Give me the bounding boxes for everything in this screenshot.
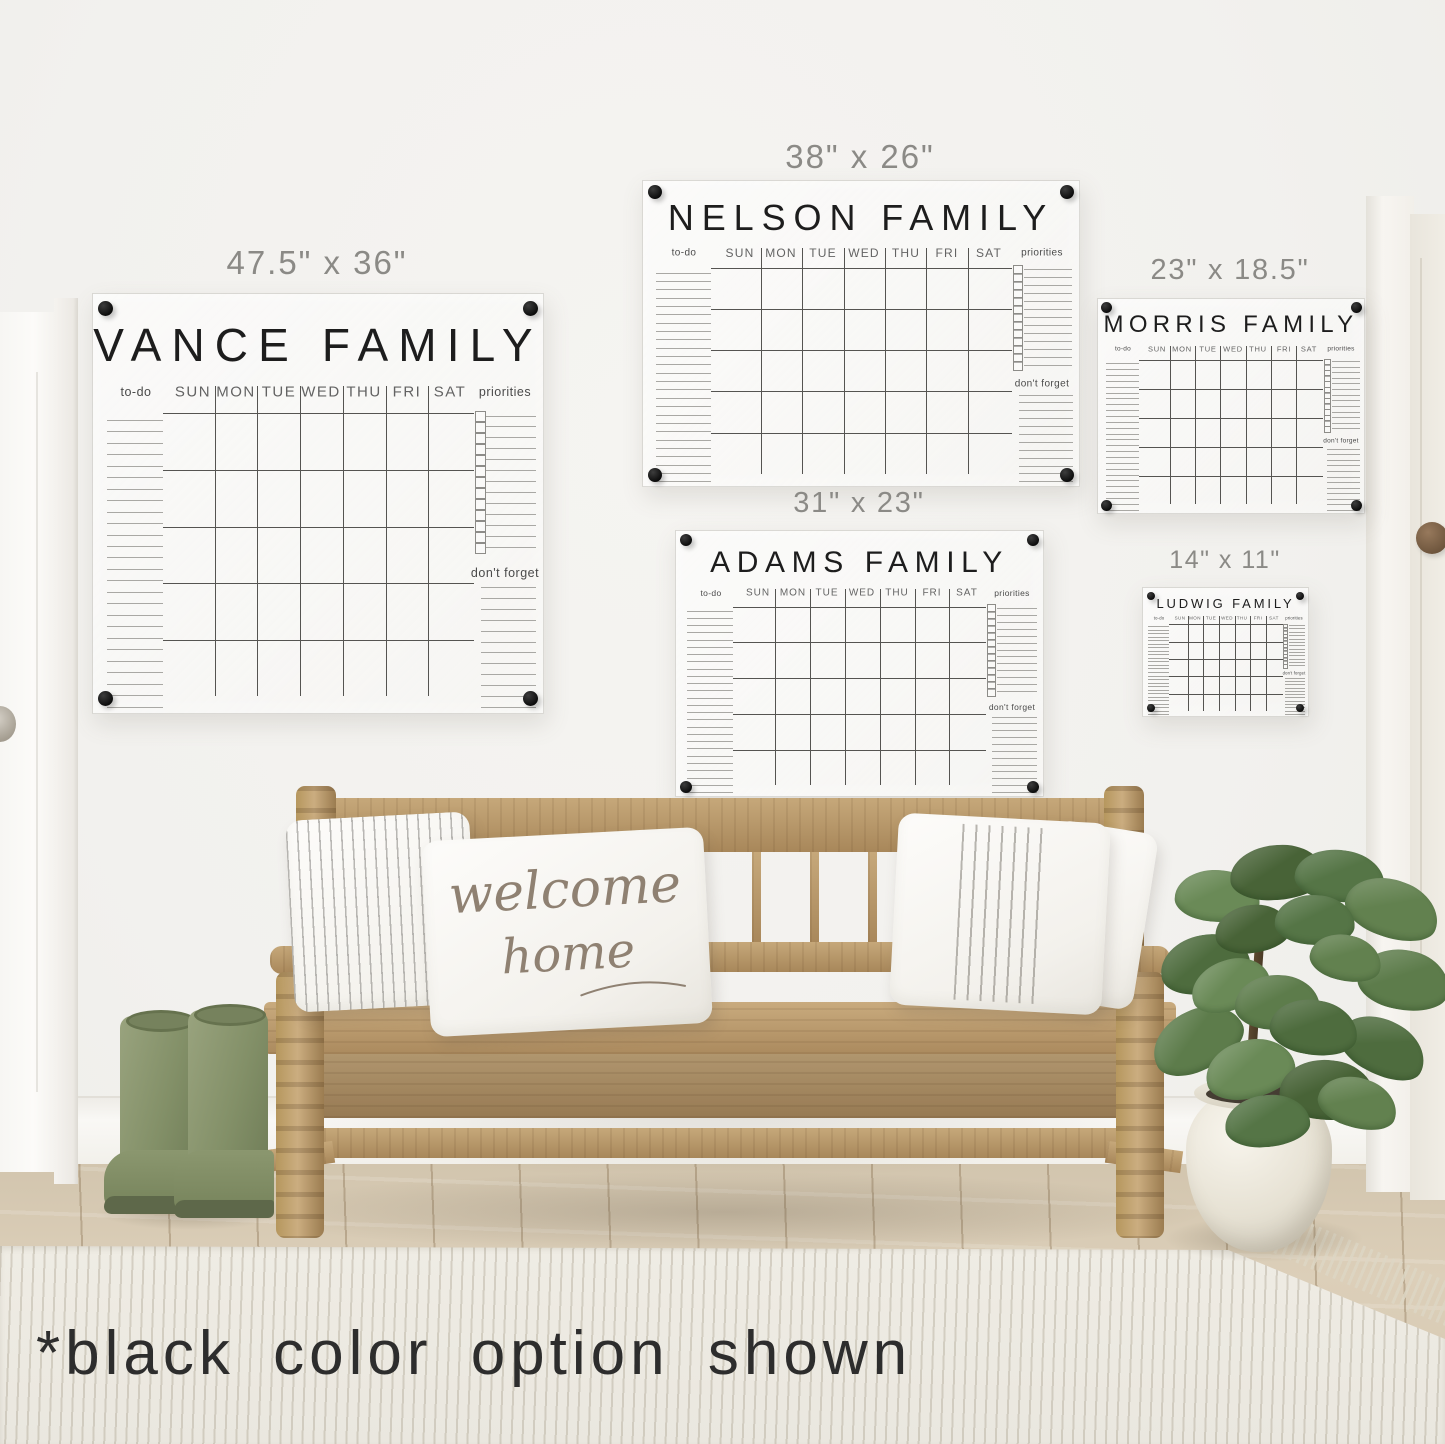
priority-line [1332, 383, 1360, 384]
mounting-screw [523, 301, 538, 316]
priority-line [1289, 652, 1305, 653]
priority-line [1024, 349, 1072, 350]
grid-row-line [163, 640, 474, 641]
todo-line [1106, 439, 1139, 440]
grid-vertical-line [968, 248, 969, 474]
dont-forget-label: don't forget [1015, 379, 1070, 390]
todo-line [107, 638, 163, 639]
day-header: TUE [1199, 345, 1216, 354]
note-line [1285, 697, 1305, 698]
note-line [481, 587, 536, 588]
grid-vertical-line [949, 589, 950, 785]
day-header: THU [892, 246, 920, 260]
left-door [0, 312, 56, 1172]
grid-vertical-line [1271, 346, 1272, 504]
todo-line [107, 661, 163, 662]
day-header: THU [1237, 616, 1248, 621]
grid-vertical-line [257, 386, 258, 696]
todo-line [656, 281, 711, 282]
dont-forget-label: don't forget [1283, 671, 1306, 676]
priority-line [997, 677, 1037, 678]
day-header-underline [711, 268, 1012, 269]
grid-vertical-line [761, 248, 762, 474]
todo-line [1148, 644, 1169, 645]
todo-line [1148, 693, 1169, 694]
mounting-screw [98, 691, 113, 706]
grid-vertical-line [1195, 346, 1196, 504]
note-line [1327, 493, 1360, 494]
priority-line [1289, 649, 1305, 650]
priority-checkbox [1324, 426, 1331, 433]
todo-line [1106, 445, 1139, 446]
day-header: TUE [809, 246, 837, 260]
left-door-frame [54, 298, 78, 1184]
priority-line [1289, 645, 1305, 646]
note-line [1019, 466, 1073, 467]
priority-line [997, 670, 1037, 671]
priority-line [1024, 317, 1072, 318]
priority-line [997, 656, 1037, 657]
note-line [1019, 402, 1073, 403]
todo-line [656, 381, 711, 382]
note-line [1019, 418, 1073, 419]
priority-checkbox [987, 688, 996, 697]
todo-line [656, 331, 711, 332]
day-header-underline [733, 607, 986, 608]
left-door-panel-line [36, 372, 38, 1092]
todo-line [1148, 672, 1169, 673]
priority-line [1024, 285, 1072, 286]
priority-line [997, 636, 1037, 637]
todo-line [687, 683, 733, 684]
grid-vertical-line [1220, 346, 1221, 504]
grid-row-line [1139, 447, 1323, 448]
todo-line [687, 611, 733, 612]
priority-checkbox [1013, 361, 1023, 371]
note-line [1019, 426, 1073, 427]
note-line [992, 771, 1037, 772]
todo-line [107, 695, 163, 696]
todo-line [1106, 422, 1139, 423]
day-header: THU [1249, 345, 1267, 354]
note-line [1285, 684, 1305, 685]
note-line [992, 758, 1037, 759]
todo-line [687, 690, 733, 691]
priority-line [1332, 417, 1360, 418]
todo-line [656, 339, 711, 340]
todo-line [687, 763, 733, 764]
grid-vertical-line [915, 589, 916, 785]
priority-line [486, 426, 536, 427]
todo-line [1106, 369, 1139, 370]
todo-line [107, 477, 163, 478]
dont-forget-label: don't forget [989, 702, 1035, 712]
day-header: TUE [1206, 616, 1216, 621]
todo-line [687, 632, 733, 633]
priority-line [1332, 389, 1360, 390]
note-line [1327, 482, 1360, 483]
priority-line [1332, 378, 1360, 379]
note-line [1285, 688, 1305, 689]
priority-checkbox [475, 488, 486, 499]
right-boot-opening [194, 1004, 266, 1026]
priority-checkbox [475, 510, 486, 521]
note-line [1019, 410, 1073, 411]
todo-line [687, 778, 733, 779]
todo-line [107, 546, 163, 547]
priority-checkbox [475, 455, 486, 466]
todo-label: to-do [700, 588, 721, 598]
note-line [1327, 465, 1360, 466]
priority-line [1024, 325, 1072, 326]
todo-line [107, 535, 163, 536]
todo-line [1148, 651, 1169, 652]
todo-line [1106, 492, 1139, 493]
priority-line [997, 622, 1037, 623]
grid-vertical-line [1246, 346, 1247, 504]
priority-line [1332, 406, 1360, 407]
todo-line [687, 734, 733, 735]
mounting-screw [1027, 534, 1039, 546]
day-header: SAT [434, 384, 467, 401]
day-header: FRI [1254, 616, 1263, 621]
todo-line [1148, 700, 1169, 701]
todo-line [687, 647, 733, 648]
note-line [1019, 434, 1073, 435]
todo-line [687, 669, 733, 670]
todo-label: to-do [672, 248, 697, 259]
grid-vertical-line [386, 386, 387, 696]
todo-line [656, 364, 711, 365]
priority-line [1289, 642, 1305, 643]
todo-line [107, 523, 163, 524]
note-line [1285, 678, 1305, 679]
todo-line [1106, 451, 1139, 452]
bench-front-stretcher [324, 1128, 1116, 1158]
bench-spindle [868, 852, 877, 944]
todo-line [1148, 630, 1169, 631]
mounting-screw [523, 691, 538, 706]
bench-spindle [752, 852, 761, 944]
grid-vertical-line [802, 248, 803, 474]
size-label-vance: 47.5" x 36" [227, 244, 408, 282]
todo-line [1106, 434, 1139, 435]
todo-line [1106, 398, 1139, 399]
mounting-screw [1296, 704, 1304, 712]
mounting-screw [1351, 302, 1362, 313]
striped-pillow-right [889, 813, 1111, 1016]
priority-line [1289, 662, 1305, 663]
day-header: FRI [922, 588, 941, 599]
todo-line [656, 415, 711, 416]
todo-line [1106, 404, 1139, 405]
grid-row-line [733, 642, 986, 643]
grid-vertical-line [844, 248, 845, 474]
note-line [992, 737, 1037, 738]
todo-line [656, 348, 711, 349]
day-header: WED [849, 588, 875, 599]
priority-line [1289, 665, 1305, 666]
priority-line [997, 615, 1037, 616]
grid-vertical-line [215, 386, 216, 696]
todo-line [656, 406, 711, 407]
todo-line [107, 649, 163, 650]
priority-checkbox [475, 543, 486, 554]
mounting-screw [1147, 592, 1155, 600]
todo-line [1106, 457, 1139, 458]
todo-line [1106, 463, 1139, 464]
day-header: SUN [726, 246, 755, 260]
grid-vertical-line [775, 589, 776, 785]
priority-checkbox [475, 411, 486, 422]
priority-line [997, 608, 1037, 609]
todo-line [687, 676, 733, 677]
priorities-label: priorities [1327, 346, 1354, 353]
day-header: WED [1221, 616, 1233, 621]
todo-line [107, 420, 163, 421]
grid-row-line [1139, 389, 1323, 390]
priority-checkbox [475, 477, 486, 488]
todo-line [107, 512, 163, 513]
todo-line [107, 454, 163, 455]
grid-row-line [1169, 659, 1283, 660]
calendar-board-nelson: NELSON FAMILYto-doprioritiesdon't forget… [642, 180, 1080, 487]
todo-line [1106, 480, 1139, 481]
note-line [481, 598, 536, 599]
calendar-title-ludwig: LUDWIG FAMILY [1143, 596, 1308, 611]
day-header: FRI [393, 384, 422, 401]
priority-line [486, 547, 536, 548]
todo-line [687, 741, 733, 742]
grid-vertical-line [810, 589, 811, 785]
todo-line [107, 626, 163, 627]
todo-line [656, 440, 711, 441]
note-line [992, 751, 1037, 752]
todo-line [656, 323, 711, 324]
todo-line [656, 306, 711, 307]
todo-line [1148, 637, 1169, 638]
grid-row-line [1169, 642, 1283, 643]
note-line [1019, 458, 1073, 459]
note-line [1285, 694, 1305, 695]
todo-line [107, 592, 163, 593]
bench-floor-shadow [250, 1172, 1200, 1252]
todo-line [1106, 416, 1139, 417]
day-header: MON [780, 588, 806, 599]
todo-line [656, 448, 711, 449]
note-line [1285, 714, 1305, 715]
todo-line [687, 661, 733, 662]
day-header: THU [346, 384, 381, 401]
dont-forget-label: don't forget [1323, 438, 1358, 445]
day-header: TUE [262, 384, 297, 401]
todo-line [1148, 679, 1169, 680]
priority-line [1332, 395, 1360, 396]
right-boot-sole [174, 1200, 274, 1218]
todo-line [687, 770, 733, 771]
note-line [1019, 450, 1073, 451]
calendar-title-adams: ADAMS FAMILY [676, 546, 1043, 580]
priorities-label: priorities [994, 588, 1030, 598]
grid-vertical-line [885, 248, 886, 474]
note-line [481, 685, 536, 686]
grid-vertical-line [1235, 616, 1236, 711]
day-header: SUN [1175, 616, 1186, 621]
pillow-stripe-cluster [953, 824, 1047, 1005]
note-line [992, 744, 1037, 745]
note-line [481, 663, 536, 664]
priority-line [1332, 423, 1360, 424]
priority-checkbox [475, 444, 486, 455]
grid-row-line [163, 470, 474, 471]
priorities-label: priorities [1021, 248, 1063, 259]
mounting-screw [1296, 592, 1304, 600]
grid-row-line [163, 527, 474, 528]
todo-line [1106, 381, 1139, 382]
todo-line [1106, 410, 1139, 411]
todo-label: to-do [121, 385, 152, 399]
grid-row-line [1139, 476, 1323, 477]
todo-line [1148, 658, 1169, 659]
bench-front-left-leg [276, 972, 324, 1238]
priority-line [1024, 365, 1072, 366]
todo-line [1148, 690, 1169, 691]
priority-line [997, 691, 1037, 692]
todo-line [1106, 363, 1139, 364]
todo-line [656, 356, 711, 357]
pillow-text-line1: welcome [422, 853, 707, 928]
priority-line [1024, 357, 1072, 358]
grid-row-line [711, 350, 1012, 351]
mounting-screw [1060, 185, 1074, 199]
priority-line [486, 514, 536, 515]
mounting-screw [98, 301, 113, 316]
todo-line [687, 698, 733, 699]
grid-row-line [711, 391, 1012, 392]
mounting-screw [1351, 500, 1362, 511]
note-line [992, 778, 1037, 779]
note-line [992, 717, 1037, 718]
mounting-screw [648, 185, 662, 199]
note-line [481, 609, 536, 610]
note-line [1327, 488, 1360, 489]
note-line [1327, 460, 1360, 461]
todo-line [107, 489, 163, 490]
day-header: SUN [746, 588, 770, 599]
priority-line [1024, 293, 1072, 294]
todo-line [687, 756, 733, 757]
priority-line [486, 536, 536, 537]
note-line [1019, 395, 1073, 396]
todo-line [687, 727, 733, 728]
priority-line [1024, 309, 1072, 310]
priorities-label: priorities [1285, 616, 1303, 621]
todo-line [687, 712, 733, 713]
todo-line [656, 473, 711, 474]
todo-line [687, 618, 733, 619]
todo-line [656, 481, 711, 482]
priority-checkbox [475, 521, 486, 532]
grid-row-line [733, 714, 986, 715]
todo-line [1106, 469, 1139, 470]
note-line [481, 620, 536, 621]
calendar-board-adams: ADAMS FAMILYto-doprioritiesdon't forgetS… [675, 530, 1044, 797]
priority-line [1332, 361, 1360, 362]
day-header: SAT [1301, 345, 1317, 354]
priority-line [1332, 412, 1360, 413]
priority-line [486, 525, 536, 526]
note-line [481, 642, 536, 643]
todo-line [1148, 668, 1169, 669]
priority-line [486, 503, 536, 504]
note-line [1327, 454, 1360, 455]
priority-line [1289, 655, 1305, 656]
note-line [1019, 442, 1073, 443]
priority-line [1024, 277, 1072, 278]
todo-line [687, 705, 733, 706]
priority-line [486, 437, 536, 438]
priority-checkbox [475, 532, 486, 543]
day-header: FRI [1277, 345, 1291, 354]
todo-line [107, 443, 163, 444]
todo-line [656, 398, 711, 399]
todo-line [1148, 714, 1169, 715]
todo-line [687, 719, 733, 720]
priority-line [1332, 372, 1360, 373]
todo-line [1106, 375, 1139, 376]
todo-line [107, 466, 163, 467]
grid-vertical-line [1296, 346, 1297, 504]
size-label-morris: 23" x 18.5" [1150, 254, 1309, 287]
todo-line [1148, 665, 1169, 666]
todo-line [656, 273, 711, 274]
priority-line [997, 684, 1037, 685]
priority-line [1289, 625, 1305, 626]
note-line [481, 652, 536, 653]
priority-line [997, 629, 1037, 630]
priority-line [1289, 628, 1305, 629]
todo-line [656, 389, 711, 390]
day-header: SUN [175, 384, 211, 401]
grid-vertical-line [1250, 616, 1251, 711]
grid-row-line [733, 678, 986, 679]
day-header-underline [1139, 360, 1323, 361]
grid-row-line [733, 750, 986, 751]
todo-line [656, 456, 711, 457]
day-header: WED [1223, 345, 1243, 354]
priority-line [1289, 635, 1305, 636]
todo-line [656, 314, 711, 315]
todo-line [687, 625, 733, 626]
todo-line [1148, 633, 1169, 634]
priority-line [1289, 632, 1305, 633]
priority-line [486, 481, 536, 482]
priorities-label: priorities [479, 385, 531, 399]
priority-checkbox [475, 433, 486, 444]
bench-apron [282, 1052, 1158, 1118]
grid-vertical-line [880, 589, 881, 785]
day-header: WED [848, 246, 880, 260]
priority-line [486, 416, 536, 417]
todo-line [1106, 393, 1139, 394]
grid-vertical-line [1219, 616, 1220, 711]
room-scene: 47.5" x 36"VANCE FAMILYto-doprioritiesdo… [0, 0, 1445, 1444]
day-header: SAT [976, 246, 1002, 260]
todo-line [687, 640, 733, 641]
todo-label: to-do [1115, 346, 1131, 353]
todo-line [687, 654, 733, 655]
note-line [1285, 681, 1305, 682]
